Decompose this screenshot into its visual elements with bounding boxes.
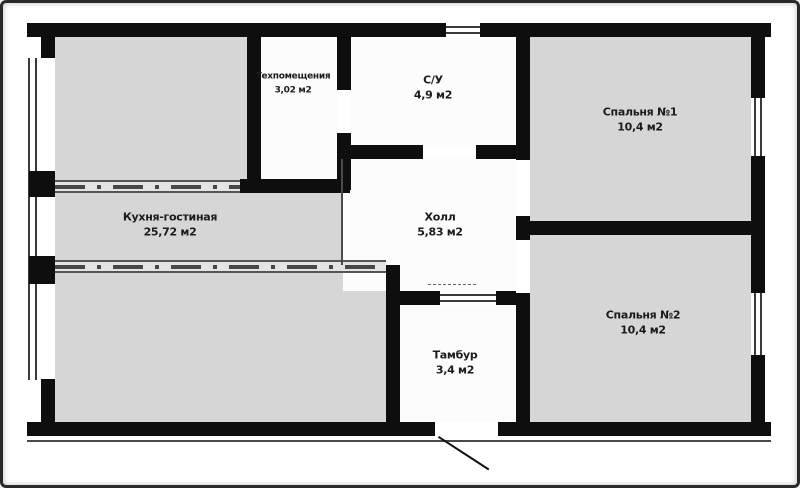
right-window-glazing-line — [754, 98, 756, 156]
left-window-gap-2 — [41, 197, 55, 256]
wall-tech-bathroom-lower — [337, 133, 351, 190]
label-room-kitchen: Кухня-гостиная 25,72 м2 — [90, 210, 250, 241]
top-window-glazing-line — [446, 32, 480, 34]
room-name: Кухня-гостиная — [90, 210, 250, 225]
kitchen-partition-band-upper — [55, 180, 247, 193]
room-area: 10,4 м2 — [563, 323, 723, 338]
right-window-glazing-line — [760, 98, 762, 156]
label-room-bathroom: С/У 4,9 м2 — [353, 73, 513, 104]
room-name: Холл — [360, 210, 520, 225]
left-window-gap-1 — [41, 58, 55, 171]
room-name: С/У — [353, 73, 513, 88]
room-name: Тамбур — [375, 348, 535, 363]
wall-bathroom-bottom-left — [337, 145, 423, 159]
tambour-door-swing — [428, 284, 476, 285]
room-name: Спальня №1 — [560, 105, 720, 120]
left-window-glazing-line — [35, 58, 37, 380]
room-area: 25,72 м2 — [90, 225, 250, 240]
right-window-glazing-line — [760, 293, 762, 355]
tambour-door-glazing-line — [440, 300, 496, 302]
entrance-door-opening — [435, 422, 498, 436]
wall-tech-left — [247, 23, 261, 193]
left-wall-pier-2 — [29, 256, 55, 284]
label-room-hall: Холл 5,83 м2 — [360, 210, 520, 241]
wall-bathroom-bottom-right — [476, 145, 516, 159]
floor-plan: Техпомещения 3,02 м2 С/У 4,9 м2 Спальня … — [3, 3, 800, 491]
label-room-tambour: Тамбур 3,4 м2 — [375, 348, 535, 379]
room-area: 10,4 м2 — [560, 120, 720, 135]
left-window-glazing-line — [28, 58, 30, 380]
wall-right — [751, 23, 765, 436]
room-name: Техпомещения — [213, 71, 373, 85]
foundation-line — [27, 440, 771, 442]
wall-top — [27, 23, 771, 37]
dash-pattern — [55, 185, 247, 189]
room-area: 3,02 м2 — [213, 84, 373, 98]
kitchen-hall-boundary-line — [341, 159, 343, 265]
wall-tambour-top-right — [496, 291, 516, 305]
wall-tech-bottom — [240, 179, 350, 193]
label-room-tech: Техпомещения 3,02 м2 — [213, 71, 373, 98]
left-window-gap-3 — [41, 284, 55, 379]
room-tech-area — [261, 37, 337, 179]
tambour-door-glazing-line — [440, 294, 496, 296]
dash-pattern — [55, 265, 386, 269]
wall-divider-upper — [516, 23, 530, 160]
label-room-bedroom2: Спальня №2 10,4 м2 — [563, 308, 723, 339]
label-room-bedroom1: Спальня №1 10,4 м2 — [560, 105, 720, 136]
room-name: Спальня №2 — [563, 308, 723, 323]
room-kitchen-lower-area — [55, 273, 386, 422]
wall-tambour-top-left — [386, 291, 440, 305]
wall-between-bedrooms — [530, 221, 753, 235]
room-area: 4,9 м2 — [353, 88, 513, 103]
room-area: 3,4 м2 — [375, 363, 535, 378]
top-window-glazing-line — [446, 26, 480, 28]
kitchen-partition-band-lower — [55, 260, 386, 273]
right-window-glazing-line — [754, 293, 756, 355]
left-wall-pier-1 — [29, 171, 55, 197]
room-kitchen-upper-area — [55, 37, 247, 180]
room-area: 5,83 м2 — [360, 225, 520, 240]
photo-frame: Техпомещения 3,02 м2 С/У 4,9 м2 Спальня … — [0, 0, 800, 488]
